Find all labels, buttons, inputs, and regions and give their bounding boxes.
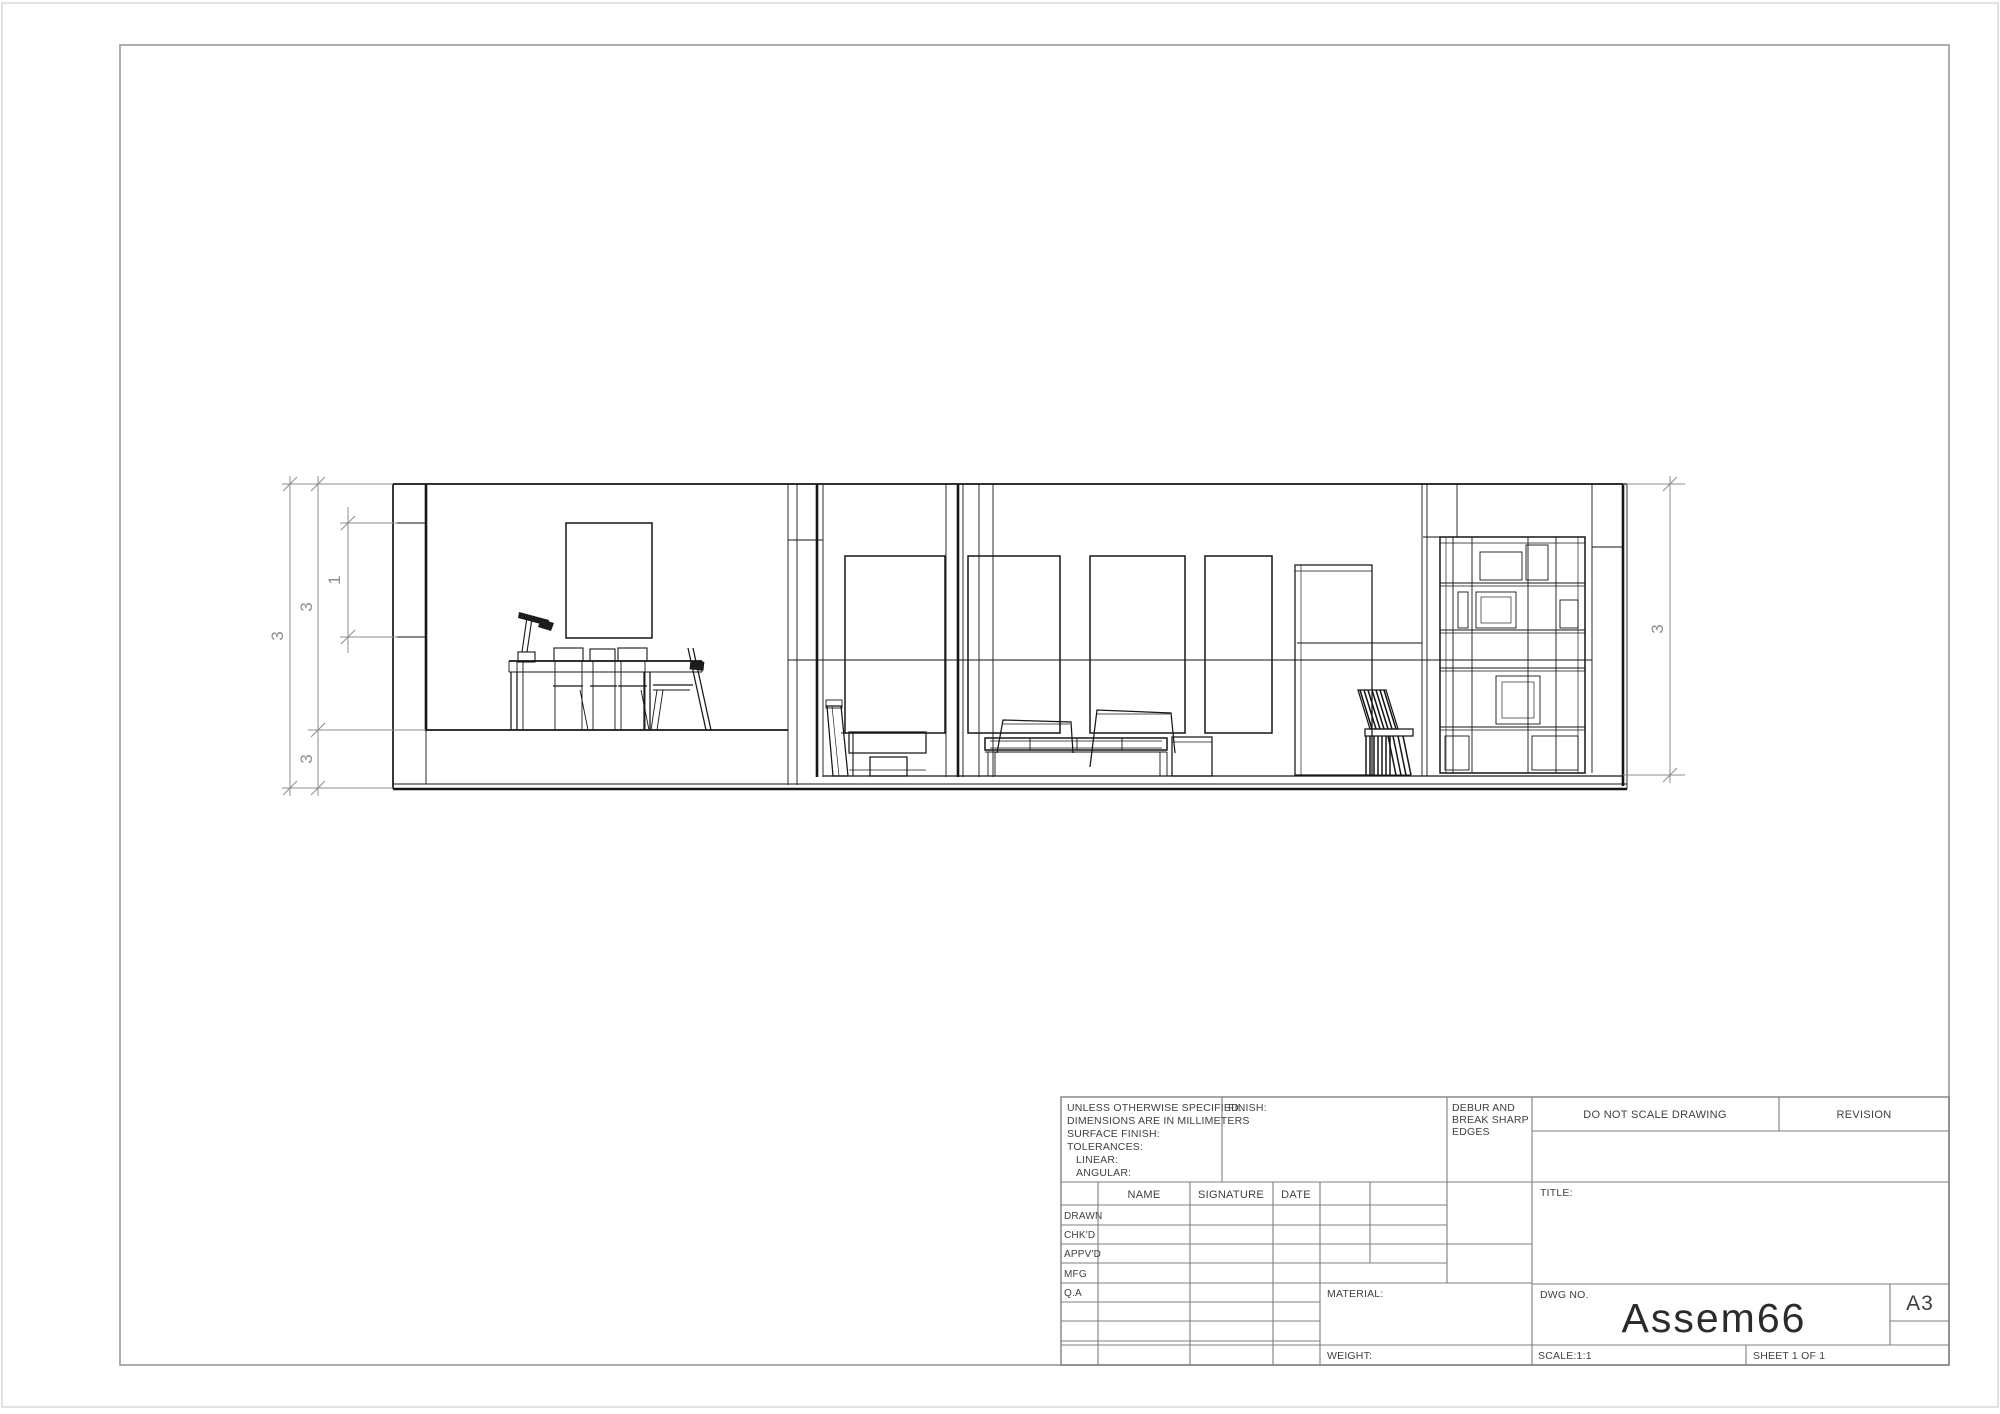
dim-left-wall: 3 xyxy=(297,602,316,611)
spec-note-line: ANGULAR: xyxy=(1076,1167,1131,1179)
col-header-date: DATE xyxy=(1281,1189,1311,1201)
spec-note-line: SURFACE FINISH: xyxy=(1067,1128,1160,1140)
wall-frames xyxy=(845,556,1372,775)
row-label-chkd: CHK'D xyxy=(1064,1230,1095,1241)
sofa-end-table xyxy=(1172,737,1212,776)
dim-left-slab: 3 xyxy=(297,754,316,763)
title-block: UNLESS OTHERWISE SPECIFIED: DIMENSIONS A… xyxy=(1061,1097,1949,1365)
spec-note-line: TOLERANCES: xyxy=(1067,1141,1143,1153)
side-steps xyxy=(849,732,926,776)
dwg-no-label: DWG NO. xyxy=(1540,1289,1589,1301)
picture-frame xyxy=(566,523,652,638)
outer-page-border xyxy=(2,3,1998,1407)
dim-left-opening: 1 xyxy=(325,575,344,584)
title-block-border xyxy=(1061,1097,1949,1365)
bookshelf xyxy=(1440,537,1585,773)
title-block-horizontals xyxy=(1061,1131,1949,1345)
sheet-canvas: 3 3 3 1 3 UNLESS OTHERWISE SPECIFIED: DI… xyxy=(0,0,2000,1414)
col-header-name: NAME xyxy=(1128,1189,1161,1201)
tall-frame xyxy=(1295,565,1372,775)
do-not-scale-label: DO NOT SCALE DRAWING xyxy=(1583,1109,1727,1121)
dim-right-overall: 3 xyxy=(1648,624,1667,633)
material-label: MATERIAL: xyxy=(1327,1288,1383,1300)
row-label-mfg: MFG xyxy=(1064,1269,1087,1280)
finish-label: FINISH: xyxy=(1228,1102,1267,1114)
row-label-qa: Q.A xyxy=(1064,1288,1082,1299)
armchair xyxy=(826,700,856,776)
title-label: TITLE: xyxy=(1540,1187,1573,1199)
drawing-frame-border xyxy=(120,45,1949,1365)
paper-size-label: A3 xyxy=(1906,1292,1934,1315)
row-label-drawn: DRAWN xyxy=(1064,1211,1102,1222)
weight-label: WEIGHT: xyxy=(1327,1350,1372,1362)
shelf-objects xyxy=(1445,545,1578,770)
revision-label: REVISION xyxy=(1837,1109,1892,1121)
scale-label: SCALE:1:1 xyxy=(1538,1350,1592,1362)
spec-note-line: UNLESS OTHERWISE SPECIFIED: xyxy=(1067,1102,1242,1114)
walls-and-floors xyxy=(393,484,1627,789)
desk-lamp xyxy=(517,612,554,730)
dimensions-right: 3 xyxy=(1623,476,1685,783)
dim-left-overall: 3 xyxy=(268,631,287,640)
debur-line: EDGES xyxy=(1452,1126,1490,1138)
debur-note: DEBUR AND BREAK SHARP EDGES xyxy=(1452,1102,1529,1138)
sofa xyxy=(985,710,1175,776)
spec-note-line: DIMENSIONS ARE IN MILLIMETERS xyxy=(1067,1115,1250,1127)
debur-line: DEBUR AND xyxy=(1452,1102,1515,1114)
spec-note-line: LINEAR: xyxy=(1076,1154,1118,1166)
col-header-signature: SIGNATURE xyxy=(1198,1189,1264,1201)
sheet-label: SHEET 1 OF 1 xyxy=(1753,1350,1825,1362)
dining-table xyxy=(509,661,702,730)
dimensions-left: 3 3 3 1 xyxy=(268,476,426,796)
row-label-appvd: APPV'D xyxy=(1064,1249,1101,1260)
debur-line: BREAK SHARP xyxy=(1452,1114,1529,1126)
drawing-sheet: 3 3 3 1 3 UNLESS OTHERWISE SPECIFIED: DI… xyxy=(0,0,2000,1414)
section-drawing-view: 3 3 3 1 3 xyxy=(268,476,1685,796)
slatted-chair xyxy=(1358,690,1413,775)
drawing-number: Assem66 xyxy=(1622,1295,1807,1341)
